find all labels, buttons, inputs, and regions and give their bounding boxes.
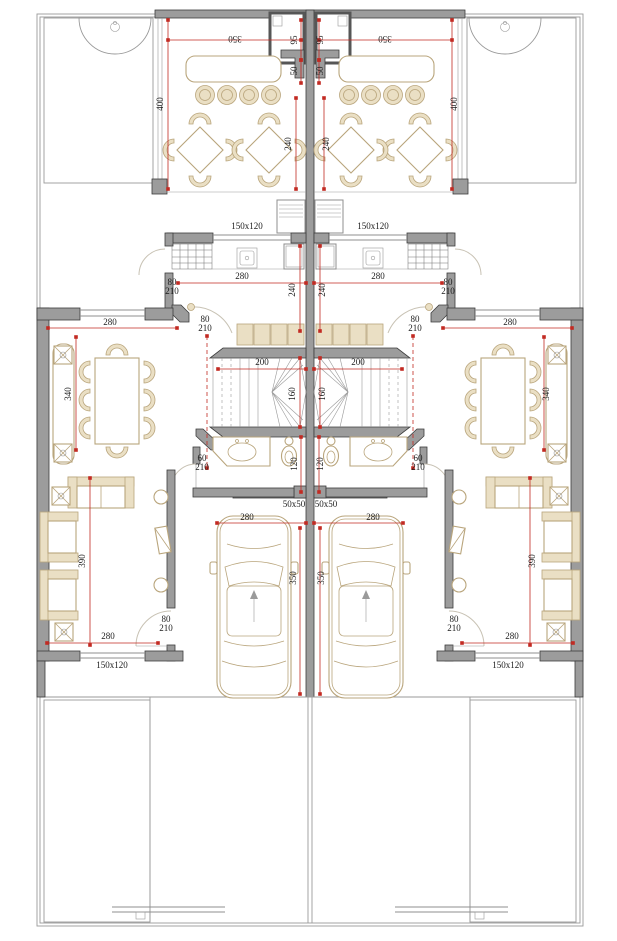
dimension-label: 280 bbox=[103, 317, 117, 327]
dimension-endpoint bbox=[570, 326, 574, 330]
dimension-endpoint bbox=[166, 187, 170, 191]
dimension-label: 280 bbox=[505, 631, 519, 641]
dimension-endpoint bbox=[318, 526, 322, 530]
dimension-label: 95 bbox=[289, 35, 299, 45]
dimension-endpoint bbox=[299, 18, 303, 22]
dimension-endpoint bbox=[318, 692, 322, 696]
dimension-endpoint bbox=[299, 81, 303, 85]
dimension-endpoint bbox=[205, 334, 209, 338]
dimension-endpoint bbox=[215, 521, 219, 525]
party-wall bbox=[306, 10, 314, 697]
dimension-endpoint bbox=[528, 643, 532, 647]
dimension-label: 240 bbox=[317, 283, 327, 297]
dimension-endpoint bbox=[317, 81, 321, 85]
dimension-endpoint bbox=[46, 326, 50, 330]
dimension-label: 120 bbox=[315, 457, 325, 471]
dimension-endpoint bbox=[299, 58, 303, 62]
dimension-endpoint bbox=[317, 490, 321, 494]
dimension-label: 240 bbox=[287, 283, 297, 297]
dimension-label: 50x50 bbox=[315, 499, 338, 509]
dimension-endpoint bbox=[298, 425, 302, 429]
floor-plan-page: 35035095955050400400240240150x120150x120… bbox=[0, 0, 617, 941]
dimension-endpoint bbox=[216, 367, 220, 371]
dimension-endpoint bbox=[299, 490, 303, 494]
dimension-endpoint bbox=[318, 356, 322, 360]
dimension-endpoint bbox=[312, 281, 316, 285]
dimension-endpoint bbox=[528, 476, 532, 480]
dimension-endpoint bbox=[176, 281, 180, 285]
dimension-label: 150x120 bbox=[231, 221, 263, 231]
dimension-label: 350 bbox=[378, 34, 392, 44]
dimension-label: 350 bbox=[316, 571, 326, 585]
dimension-endpoint bbox=[571, 641, 575, 645]
dimension-label: 340 bbox=[541, 387, 551, 401]
floor-plan-canvas: 35035095955050400400240240150x120150x120… bbox=[0, 0, 617, 941]
dimension-label: 400 bbox=[155, 97, 165, 111]
dimension-endpoint bbox=[318, 244, 322, 248]
dimension-endpoint bbox=[312, 521, 316, 525]
dimension-label: 280 bbox=[235, 271, 249, 281]
dimension-endpoint bbox=[304, 281, 308, 285]
dimension-label: 280 bbox=[371, 271, 385, 281]
dimension-endpoint bbox=[45, 641, 49, 645]
dimension-endpoint bbox=[74, 335, 78, 339]
dimension-endpoint bbox=[299, 435, 303, 439]
dimension-label: 120 bbox=[289, 457, 299, 471]
dimension-label: 210 bbox=[198, 323, 212, 333]
dimension-endpoint bbox=[304, 367, 308, 371]
site-boundary bbox=[37, 10, 583, 926]
dimension-label: 340 bbox=[63, 387, 73, 401]
dimension-label: 400 bbox=[449, 97, 459, 111]
dimension-endpoint bbox=[294, 96, 298, 100]
dimension-label: 200 bbox=[255, 357, 269, 367]
dimension-label: 160 bbox=[317, 387, 327, 401]
dimension-label: 390 bbox=[77, 554, 87, 568]
dimension-label: 390 bbox=[527, 554, 537, 568]
dimension-endpoint bbox=[318, 329, 322, 333]
dimension-endpoint bbox=[441, 326, 445, 330]
dimension-label: 210 bbox=[159, 623, 173, 633]
dimension-label: 210 bbox=[408, 323, 422, 333]
dimension-endpoint bbox=[450, 187, 454, 191]
dimension-label: 210 bbox=[441, 286, 455, 296]
dimension-endpoint bbox=[401, 521, 405, 525]
dimension-endpoint bbox=[322, 96, 326, 100]
dimension-label: 50 bbox=[289, 66, 299, 76]
dimension-label: 280 bbox=[366, 512, 380, 522]
dimension-endpoint bbox=[156, 641, 160, 645]
dimension-endpoint bbox=[294, 187, 298, 191]
dimension-label: 50 bbox=[315, 66, 325, 76]
dimension-endpoint bbox=[450, 18, 454, 22]
dimension-endpoint bbox=[317, 58, 321, 62]
dimension-endpoint bbox=[88, 643, 92, 647]
dimension-endpoint bbox=[317, 18, 321, 22]
dimension-label: 280 bbox=[503, 317, 517, 327]
dimension-endpoint bbox=[318, 425, 322, 429]
dimension-label: 350 bbox=[228, 34, 242, 44]
dimension-endpoint bbox=[166, 18, 170, 22]
dimension-label: 95 bbox=[315, 35, 325, 45]
unit-right bbox=[314, 13, 583, 922]
dimension-endpoint bbox=[298, 356, 302, 360]
dimension-label: 350 bbox=[288, 571, 298, 585]
dimension-endpoint bbox=[74, 448, 78, 452]
dimension-endpoint bbox=[88, 476, 92, 480]
dimension-label: 150x120 bbox=[492, 660, 524, 670]
dimension-endpoint bbox=[304, 521, 308, 525]
dimension-endpoint bbox=[542, 335, 546, 339]
dimension-endpoint bbox=[175, 326, 179, 330]
dimension-endpoint bbox=[542, 448, 546, 452]
dimension-label: 280 bbox=[240, 512, 254, 522]
dimension-endpoint bbox=[411, 334, 415, 338]
dimension-endpoint bbox=[298, 244, 302, 248]
dimension-endpoint bbox=[298, 526, 302, 530]
dimension-label: 150x120 bbox=[96, 660, 128, 670]
dimension-label: 240 bbox=[283, 137, 293, 151]
dimension-endpoint bbox=[312, 367, 316, 371]
dimension-label: 210 bbox=[195, 462, 209, 472]
dimension-label: 200 bbox=[351, 357, 365, 367]
dimension-label: 240 bbox=[321, 137, 331, 151]
dimension-label: 150x120 bbox=[357, 221, 389, 231]
dimension-endpoint bbox=[460, 641, 464, 645]
dimension-label: 210 bbox=[411, 462, 425, 472]
dimension-label: 210 bbox=[165, 286, 179, 296]
dimension-endpoint bbox=[400, 367, 404, 371]
dimension-label: 280 bbox=[101, 631, 115, 641]
dimension-endpoint bbox=[298, 692, 302, 696]
dimension-label: 50x50 bbox=[283, 499, 306, 509]
dimension-endpoint bbox=[322, 187, 326, 191]
dimension-label: 160 bbox=[287, 387, 297, 401]
dimension-endpoint bbox=[298, 329, 302, 333]
dimension-label: 210 bbox=[447, 623, 461, 633]
dimension-endpoint bbox=[317, 435, 321, 439]
unit-left bbox=[37, 13, 306, 922]
